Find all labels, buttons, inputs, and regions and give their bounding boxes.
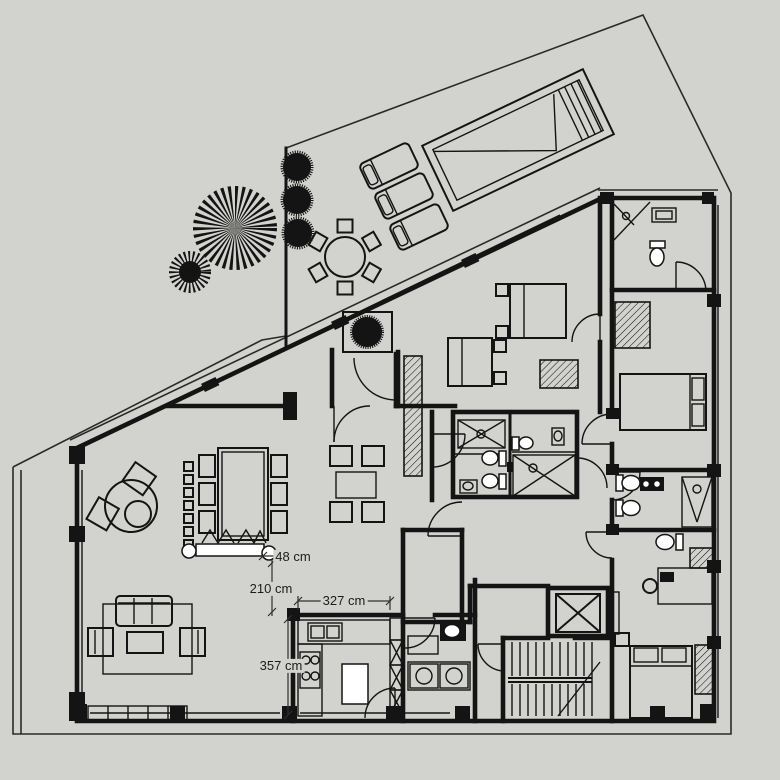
pool-steps [558,81,601,141]
wardrobe-icon [690,548,713,568]
bathroom-center [458,420,575,496]
armchair-icon [88,628,113,656]
dimension-lines [256,552,394,719]
living-room [86,446,384,720]
door-bedroom-top [572,314,600,342]
toilet-icon [656,534,683,550]
pool-lane-lines [434,94,576,198]
door-vestibule [334,406,370,442]
wardrobe-icon [695,645,713,694]
toilet-icon [650,241,665,266]
bathroom-right [616,475,712,527]
door-entry [354,358,396,400]
toilet-icon [512,437,533,450]
coffee-table-icon [127,632,163,653]
round-table-icon [86,462,157,532]
sun-lounger-icon [389,203,450,252]
bed-icon [448,338,492,386]
shrub-icon [283,153,311,181]
bed-icon [510,284,566,338]
toilet-icon [616,475,640,491]
toilet-icon [616,500,640,516]
plan-linework [0,0,780,780]
sofa-group [88,596,205,674]
bed-icon [620,374,706,430]
bed-icon [615,633,692,718]
utility-room [408,622,470,690]
washer-icon [408,662,470,690]
dimension-label-357: 357 cm [258,659,305,673]
wardrobe-icon [615,302,650,348]
sofa-icon [116,596,172,626]
stairs-icon [508,642,600,716]
dimension-label-48: 48 cm [273,550,312,564]
dining-table-icon [199,448,287,540]
outdoor-table-icon [309,220,381,295]
kitchen [298,618,403,716]
shower-icon [513,455,575,496]
shower-icon [682,477,712,527]
kitchen-island-icon [342,664,368,704]
door-bath-center [577,458,607,488]
door-bath-corridor [432,434,465,467]
bedroom-right [615,302,706,430]
tree-round-icon [179,261,201,283]
sun-lounger-icon [374,172,435,221]
wardrobe-icon [404,356,422,476]
shrub-icon [284,219,312,247]
wall-posts [69,192,721,721]
sink-icon [308,623,342,641]
sink-icon [460,480,477,493]
toilet-icon [482,474,506,489]
bathroom-topright [614,202,676,266]
sun-lounger-icon [359,142,420,191]
sun-loungers [359,142,450,252]
planter-tree-icon [352,317,382,347]
wardrobe-icon [540,360,578,388]
bedroom-top-center [496,284,578,388]
pool [422,69,614,211]
dimension-label-210: 210 cm [248,582,295,596]
shelf-column [184,462,193,549]
dimension-label-327: 327 cm [321,594,368,608]
shrub-icon [283,186,311,214]
sink-icon [552,428,564,445]
vanity-desk [643,568,712,604]
suite-bottom-right [615,534,713,718]
door-suite [586,532,612,558]
vanity [640,477,664,491]
elevator-icon [548,588,619,636]
tree-spiky-icon [214,207,256,249]
floor-plan: 48 cm 210 cm 327 cm 357 cm [0,0,780,780]
toilet-icon [440,622,466,641]
breakfast-nook [330,446,384,522]
toilet-icon [482,451,506,466]
door-bath-topright [676,262,706,292]
